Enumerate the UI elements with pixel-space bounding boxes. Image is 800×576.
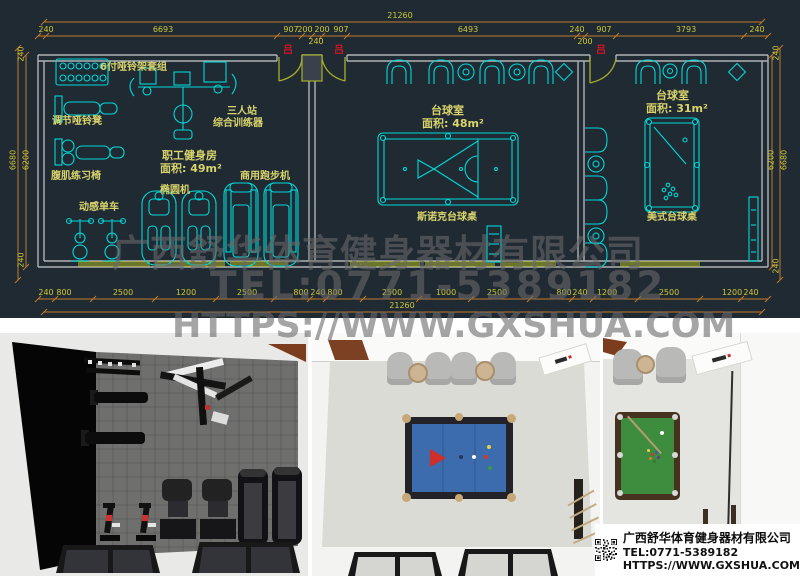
dim-label: 907 [283, 25, 298, 34]
label-pool-room-area: 面积: 31m² [646, 103, 708, 115]
ball-dot [655, 451, 658, 454]
dim-label: 2500 [659, 288, 679, 297]
window-divider [395, 557, 400, 576]
company-url: HTTPS://WWW.GXSHUA.COM [623, 559, 800, 572]
bench [85, 432, 145, 444]
door-marker: 吕 [283, 41, 293, 56]
dim-label: 800 [293, 288, 308, 297]
dim-label: 240 [17, 46, 26, 61]
label-ab-chair: 腹肌练习椅 [51, 172, 101, 183]
table-pocket [507, 493, 516, 502]
table-pocket [402, 493, 411, 502]
side-table [636, 355, 655, 374]
dim-label: 240 [38, 288, 53, 297]
spin-bike-base [136, 535, 156, 541]
dim-label-small: 240 [308, 37, 323, 46]
table-pocket [672, 452, 678, 458]
screenshot-root: 21260 240 6693 907 200 200 907 6493 240 … [0, 0, 800, 576]
dim-label: 907 [333, 25, 348, 34]
dim-label: 2500 [487, 288, 507, 297]
ball-rack-triangle [430, 449, 446, 467]
table-pocket [617, 490, 623, 496]
dim-label: 1000 [436, 288, 456, 297]
table-pocket [617, 414, 623, 420]
cad-drawing [0, 0, 800, 318]
cue-ball [472, 455, 476, 459]
label-spin-bike: 动感单车 [79, 203, 119, 214]
bench [94, 392, 148, 403]
dim-label: 240 [772, 258, 781, 273]
weight-plates [88, 360, 92, 364]
multigym-accent [205, 405, 210, 410]
strength-machine [200, 519, 236, 539]
dim-total-bottom: 21260 [389, 301, 414, 310]
ac-vent [712, 355, 727, 362]
dim-label: 6693 [153, 25, 173, 34]
dim-label: 6680 [780, 150, 789, 170]
spin-bike-base [100, 535, 120, 541]
dim-label: 240 [572, 288, 587, 297]
dim-label: 6200 [767, 150, 776, 170]
dim-label: 3793 [676, 25, 696, 34]
dim-label: 240 [310, 288, 325, 297]
ball-dot [649, 457, 652, 460]
window-divider [246, 547, 251, 573]
strength-machine [160, 519, 196, 539]
dim-label: 800 [56, 288, 71, 297]
floor-window-pane [63, 550, 153, 573]
floor-window [192, 542, 300, 573]
ball-dot [651, 453, 654, 456]
dim-label: 2500 [237, 288, 257, 297]
side-table [475, 361, 495, 381]
floor-window [56, 545, 160, 573]
render-snooker-view [312, 333, 600, 576]
label-snooker-room-name: 台球室 [431, 105, 464, 117]
pool-felt [621, 418, 674, 494]
dim-label: 2500 [113, 288, 133, 297]
ball-dot [484, 455, 488, 459]
floor-window-pane [199, 547, 293, 573]
table-pocket [455, 494, 463, 502]
label-snooker-table: 斯诺克台球桌 [417, 213, 477, 224]
dim-label: 200 [314, 25, 329, 34]
table-pocket [617, 452, 623, 458]
table-pocket [672, 490, 678, 496]
ball-dot [487, 445, 491, 449]
spin-bike-pedal [148, 523, 156, 527]
table-pocket [402, 414, 411, 423]
floor-window-pane [465, 554, 551, 576]
door-marker: 吕 [596, 41, 606, 56]
dim-label: 240 [17, 252, 26, 267]
chair [425, 352, 451, 385]
snooker-room-furniture [378, 60, 572, 262]
dim-label: 6493 [458, 25, 478, 34]
label-snooker-room-area: 面积: 48m² [422, 118, 484, 130]
spin-bike-seat [139, 503, 151, 508]
window-divider [108, 550, 113, 573]
spin-bike-accent [106, 515, 112, 521]
dim-label: 1200 [597, 288, 617, 297]
spin-bike-accent [142, 515, 148, 521]
dim-label: 6680 [9, 150, 18, 170]
table-pocket [672, 414, 678, 420]
ball-dot [488, 466, 492, 470]
label-elliptical: 椭圆机 [160, 186, 190, 197]
dim-label: 200 [297, 25, 312, 34]
table-pocket [455, 413, 463, 421]
cad-floor-plan: 21260 240 6693 907 200 200 907 6493 240 … [0, 0, 800, 318]
ball-dot [647, 449, 650, 452]
ac-light [568, 355, 572, 359]
ball-dot [653, 460, 656, 463]
dim-label: 1200 [176, 288, 196, 297]
qr-code [595, 527, 617, 573]
dim-label: 800 [327, 288, 342, 297]
cue-rack-render [574, 479, 583, 539]
strength-machine [208, 501, 228, 517]
chair [451, 352, 477, 385]
render-gym-view [0, 333, 308, 576]
dim-label-small: 200 [577, 37, 592, 46]
spin-bike-pedal [112, 523, 120, 527]
dim-label: 240 [38, 25, 53, 34]
ac-light [727, 354, 731, 358]
label-pool-room-name: 台球室 [656, 90, 689, 102]
table-pocket [507, 414, 516, 423]
label-adjustable-bench: 调节哑铃凳 [52, 117, 102, 128]
company-info: 广西舒华体育健身器材有限公司 TEL:0771-5389182 HTTPS://… [623, 529, 800, 572]
floor-window [458, 549, 558, 576]
ball-dot [459, 455, 463, 459]
dim-label: 240 [743, 288, 758, 297]
label-pool-table: 美式台球桌 [647, 213, 697, 224]
door-marker: 吕 [334, 41, 344, 56]
company-tel: TEL:0771-5389182 [623, 546, 800, 559]
chair [656, 347, 686, 383]
label-treadmill: 商用跑步机 [240, 172, 290, 183]
dim-label: 2500 [382, 288, 402, 297]
label-gym-name: 职工健身房 [162, 150, 217, 162]
company-name: 广西舒华体育健身器材有限公司 [623, 529, 800, 546]
treadmill-console [240, 469, 266, 477]
floor-window-pane [355, 557, 435, 576]
dim-label: 800 [556, 288, 571, 297]
label-gym-area: 面积: 49m² [160, 163, 222, 175]
window-divider [508, 554, 513, 576]
cue-ball [660, 431, 664, 435]
dim-total-top: 21260 [387, 11, 412, 20]
label-dumbbell-rack: 6付哑铃架套组 [100, 63, 167, 74]
dim-label: 1200 [722, 288, 742, 297]
company-card: 广西舒华体育健身器材有限公司 TEL:0771-5389182 HTTPS://… [595, 524, 800, 576]
spin-bike-seat [103, 503, 115, 508]
treadmill-console [274, 467, 300, 475]
label-trainer-1: 三人站 [227, 107, 257, 118]
ac-vent [555, 357, 568, 364]
label-trainer-2: 综合训练器 [213, 119, 263, 130]
strength-machine [162, 479, 192, 501]
treadmill-belt [278, 481, 296, 539]
dim-label: 6200 [22, 150, 31, 170]
dim-label: 240 [749, 25, 764, 34]
dim-label: 240 [569, 25, 584, 34]
strength-machine [168, 501, 188, 517]
floor-window [348, 552, 442, 576]
ball-dot [657, 456, 660, 459]
treadmill-belt [244, 483, 262, 539]
dim-label: 240 [772, 45, 781, 60]
dim-label: 907 [596, 25, 611, 34]
strength-machine [202, 479, 232, 501]
wall-column [302, 55, 322, 81]
side-table [408, 363, 428, 383]
